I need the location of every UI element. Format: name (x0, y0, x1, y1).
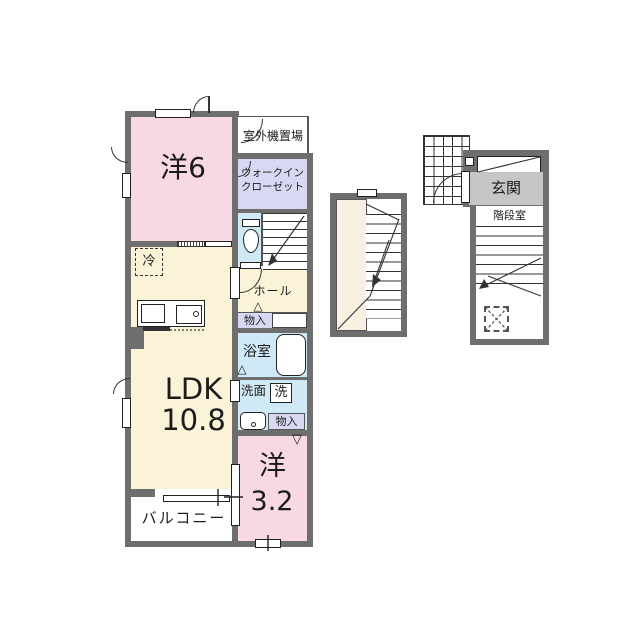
stairhall-treads (366, 214, 401, 319)
hall-door-triangle: △ (250, 299, 266, 313)
door-ldk-hall (230, 267, 240, 299)
entrance-canopy (477, 156, 541, 173)
wall-under-outdoor-unit (232, 153, 313, 159)
wic-label-line1: ウォークイン (238, 167, 307, 180)
window-bedroom2-bottom (255, 539, 281, 548)
entrance-hall: 玄関 (469, 172, 543, 205)
storage-bedroom2-label: 物入 (276, 416, 298, 428)
bedroom1-label: 洋6 (143, 148, 223, 188)
washbasin (240, 412, 266, 430)
hall-label: ホール (244, 284, 302, 299)
door-arc-bedroom1-left (111, 147, 128, 163)
stairwell-treads (476, 226, 543, 285)
bath-door-triangle: △ (234, 362, 250, 376)
stairhall-top-window (357, 189, 377, 197)
window-bedroom1-left (122, 173, 131, 198)
line-outdoor-unit-right (307, 116, 309, 153)
wall-bottom (125, 541, 313, 547)
stairwell-void-box (484, 306, 509, 332)
balcony-label: バルコニー (134, 509, 234, 529)
washer-space: 洗 (270, 383, 292, 403)
bedroom2-label-line2: 3.2 (244, 486, 300, 518)
fridge-space: 冷 (135, 248, 163, 276)
entrance-label: 玄関 (491, 181, 521, 197)
window-ldk-balcony (163, 495, 230, 502)
kitchen-counter-edge (143, 327, 170, 331)
bathtub (276, 334, 306, 376)
main-stairs (263, 213, 307, 270)
storage-bedroom2-box: 物入 (268, 413, 305, 430)
under-stair-shelf (272, 313, 307, 328)
wall-bath-washroom (238, 377, 307, 380)
entrance-post (465, 157, 474, 166)
window-bedroom1-top (155, 109, 191, 118)
ldk-label-line2: 10.8 (146, 405, 241, 435)
wall-under-storage (232, 328, 307, 333)
wall-bedroom1-ldk (131, 241, 177, 247)
opening-bedroom1-ldk (205, 241, 232, 247)
washer-label: 洗 (274, 386, 287, 400)
floor-plan-canvas: 冷 洗 物入 洋6 LDK 10.8 洋 3.2 バルコニー 室外機置場 ウォー… (0, 0, 640, 640)
door-arc-top-entry (193, 96, 209, 113)
outdoor-unit-label: 室外機置場 (239, 128, 307, 144)
kitchen-faucet (193, 311, 199, 317)
line-storage-top (238, 312, 307, 313)
wall-right (307, 153, 313, 547)
bath-label: 浴室 (240, 344, 274, 361)
kitchen-stove (141, 304, 165, 323)
line-outdoor-unit-top (239, 116, 309, 117)
sliding-door-bedroom1 (177, 241, 205, 247)
washbasin-drain (251, 422, 256, 427)
ldk-label-line1: LDK (146, 374, 241, 404)
bedroom2-label-line1: 洋 (250, 450, 295, 484)
window-ldk-left (122, 398, 131, 428)
storage-hall-label: 物入 (239, 314, 271, 327)
ldk-room (131, 247, 232, 489)
door-leaf-top-entry (208, 96, 210, 113)
washroom-label: 洗面 (238, 383, 269, 398)
fridge-label: 冷 (142, 255, 155, 269)
wic-label-line2: クローゼット (238, 181, 307, 194)
stairwell-label: 階段室 (476, 208, 543, 223)
entrance-door-leaf (461, 171, 470, 203)
door-arc-ldk-left (113, 378, 130, 394)
storage-door-triangle: ▽ (288, 432, 306, 448)
door-toilet-gap (240, 262, 261, 269)
wall-ldk-bottom-stub (131, 489, 155, 497)
toilet-tank (242, 219, 260, 227)
